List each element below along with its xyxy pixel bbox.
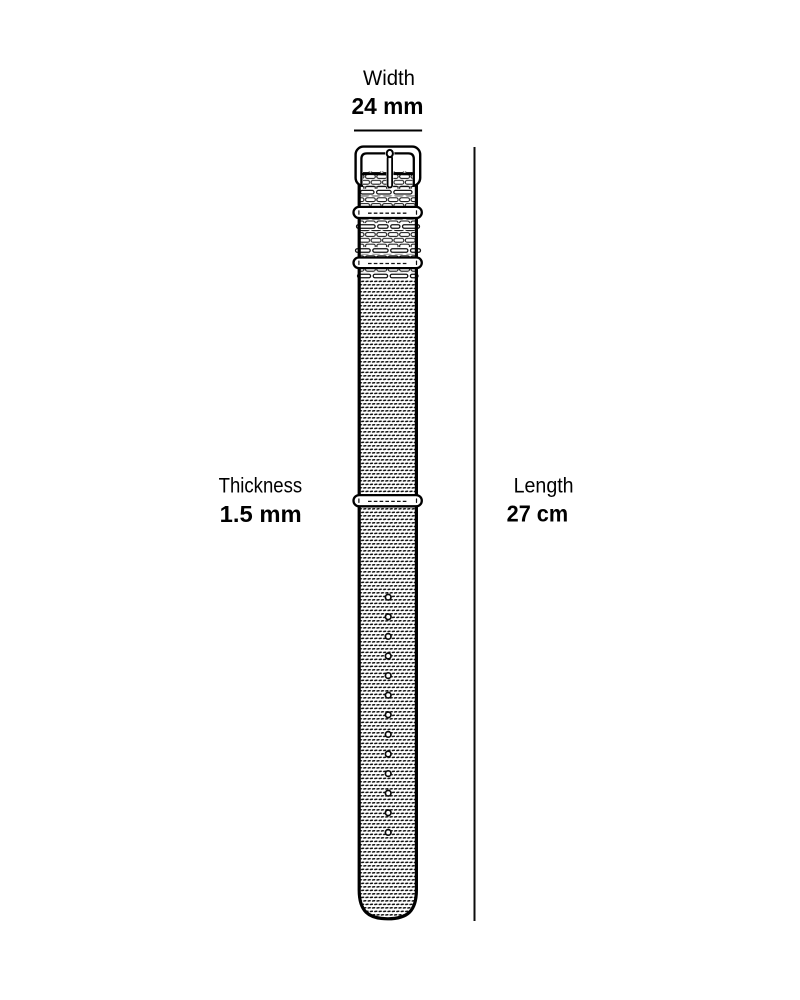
svg-text:27 cm: 27 cm xyxy=(507,501,569,527)
svg-text:1.5 mm: 1.5 mm xyxy=(220,501,302,527)
svg-text:Width: Width xyxy=(363,67,415,90)
svg-text:24 mm: 24 mm xyxy=(352,93,424,119)
svg-text:Thickness: Thickness xyxy=(219,475,303,498)
svg-text:Length: Length xyxy=(514,475,574,498)
